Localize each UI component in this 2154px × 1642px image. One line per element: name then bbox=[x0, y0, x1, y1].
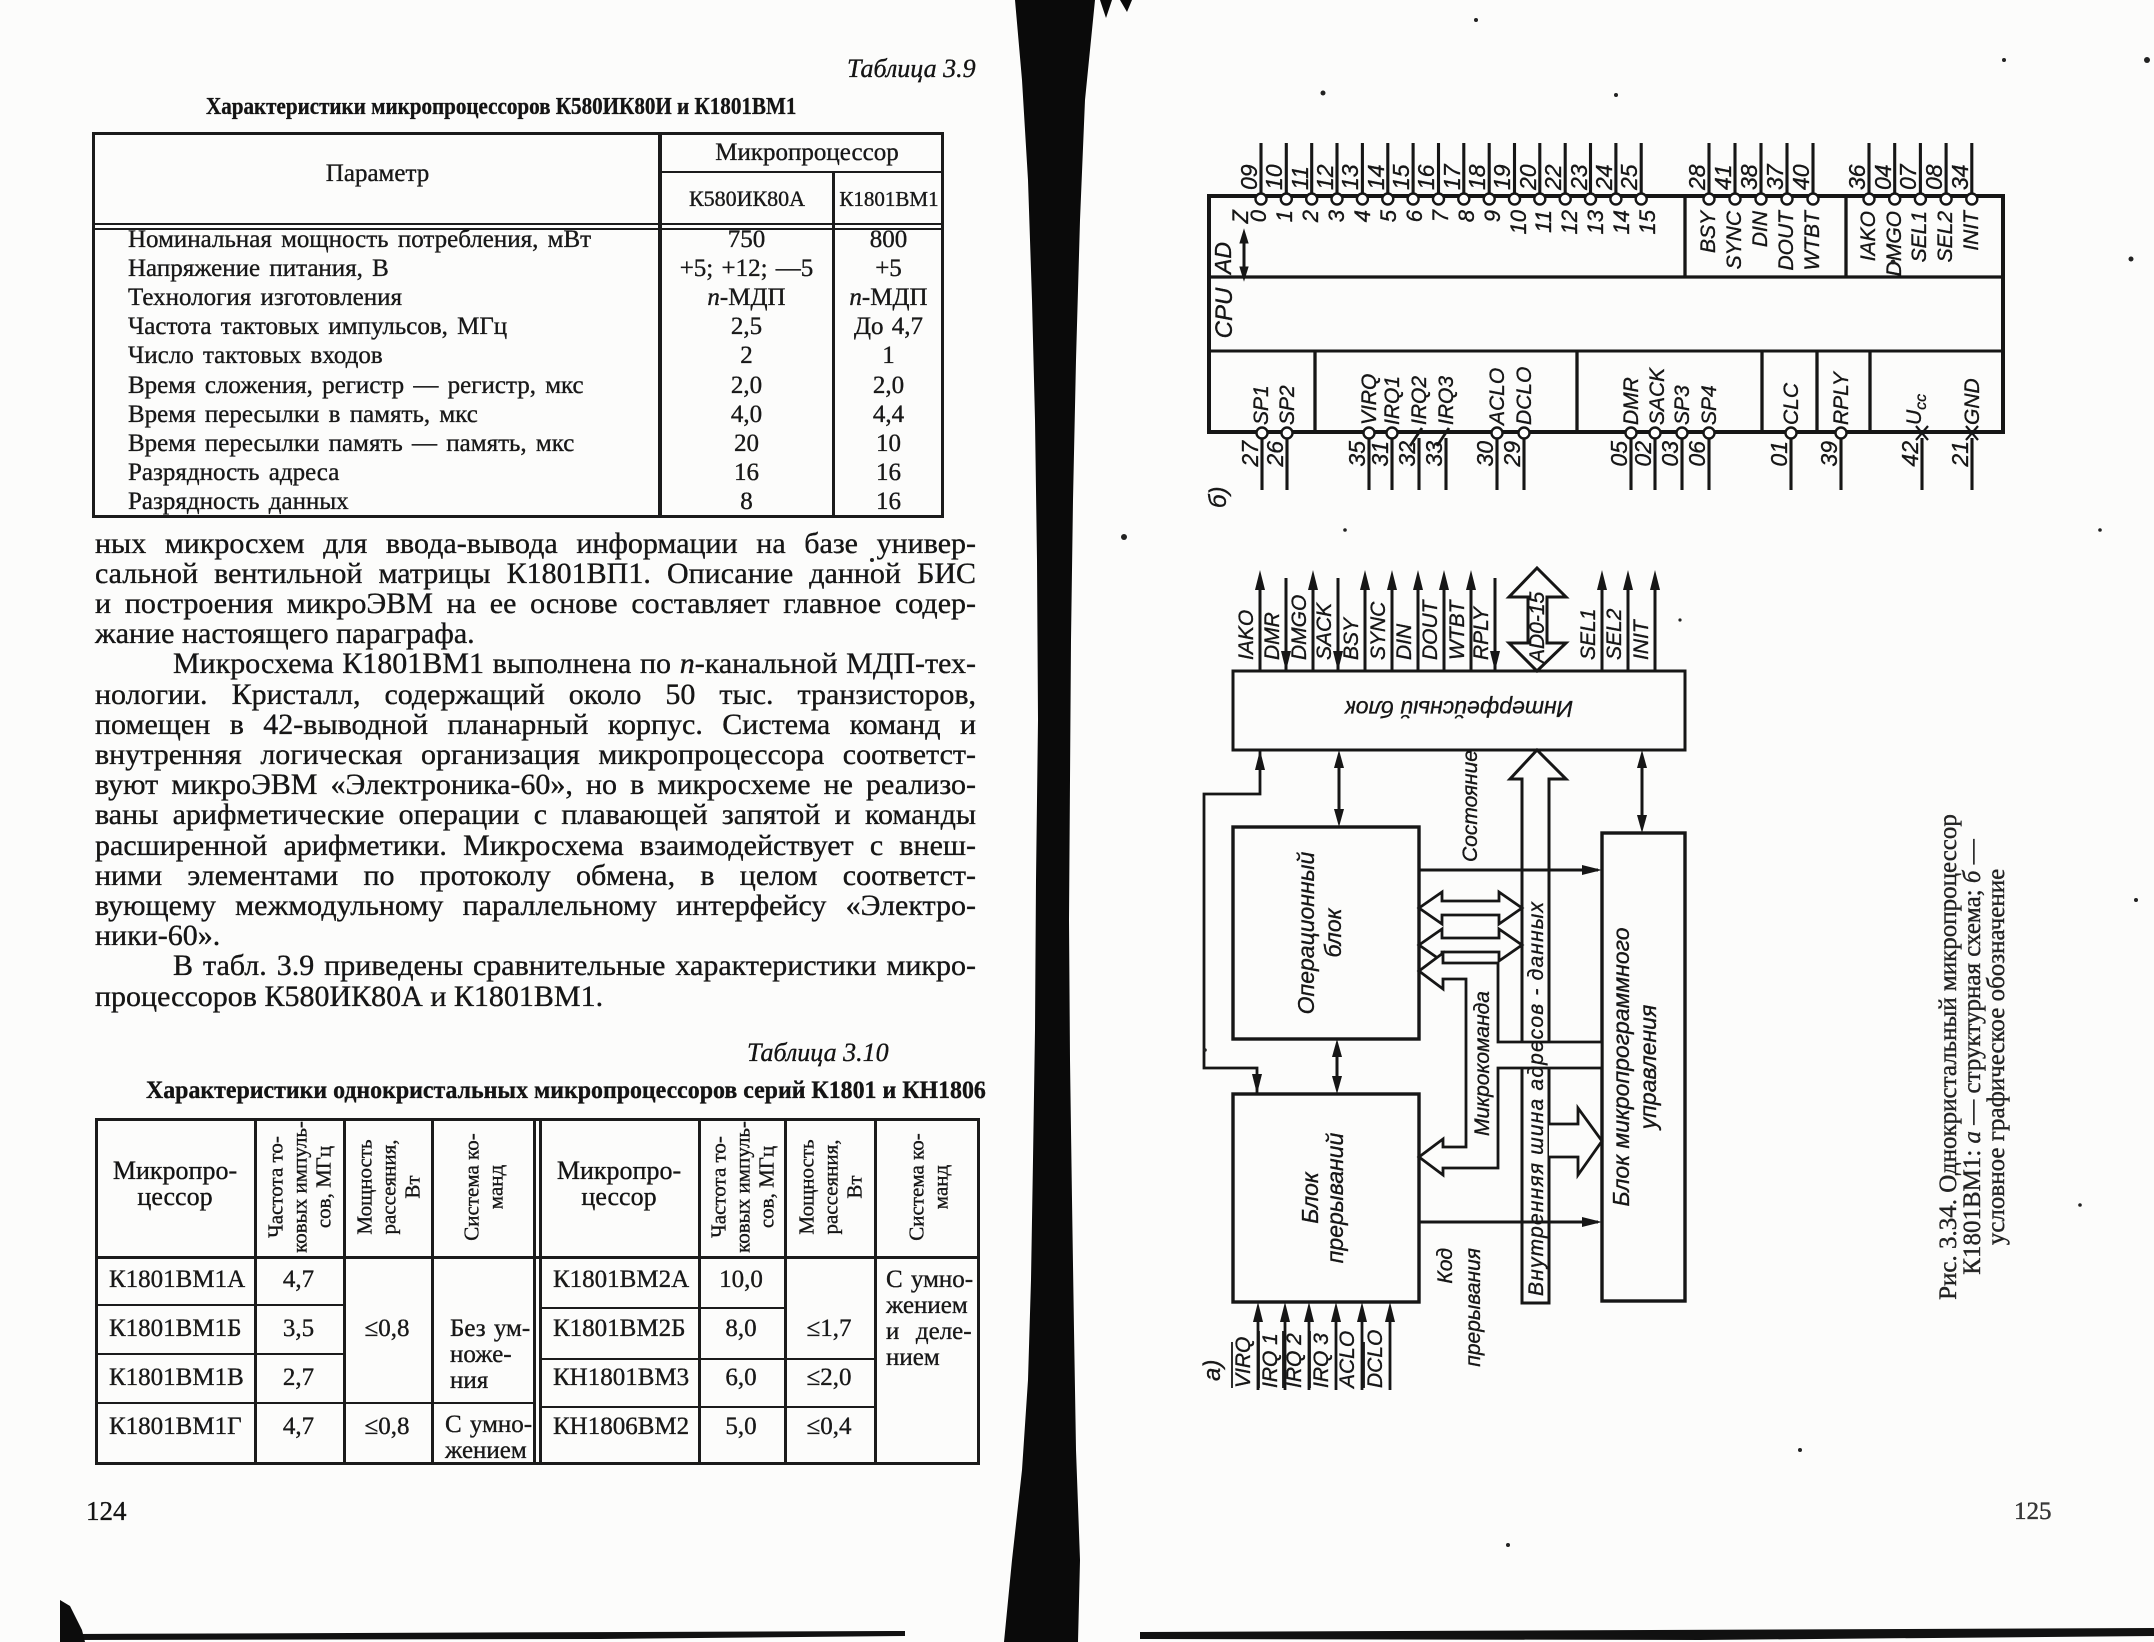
svg-text:GND: GND bbox=[1961, 378, 1984, 425]
svg-text:IRQ3: IRQ3 bbox=[1435, 376, 1458, 425]
svg-text:DIN: DIN bbox=[1749, 210, 1772, 247]
svg-text:DOUT: DOUT bbox=[1775, 209, 1798, 271]
svg-text:38: 38 bbox=[1736, 164, 1762, 190]
svg-text:RPLY: RPLY bbox=[1830, 370, 1853, 425]
svg-text:9: 9 bbox=[1480, 210, 1505, 222]
svg-text:1: 1 bbox=[1272, 210, 1297, 222]
svg-text:Вт: Вт bbox=[843, 1175, 867, 1198]
svg-text:блок: блок bbox=[1320, 907, 1346, 957]
svg-text:б): б) bbox=[1205, 487, 1232, 509]
svg-text:манд: манд bbox=[484, 1164, 508, 1209]
svg-text:09: 09 bbox=[1236, 164, 1262, 190]
svg-text:IRQ 2: IRQ 2 bbox=[1283, 1333, 1306, 1388]
svg-text:прерываний: прерываний bbox=[1322, 1133, 1348, 1264]
svg-text:BSY: BSY bbox=[1340, 616, 1363, 660]
svg-text:ковых импуль-: ковых импуль- bbox=[731, 1121, 755, 1253]
svg-text:сов, МГц: сов, МГц bbox=[755, 1146, 779, 1228]
svg-text:ковых импуль-: ковых импуль- bbox=[288, 1121, 312, 1253]
svg-text:SACK: SACK bbox=[1646, 367, 1669, 425]
svg-text:SEL2: SEL2 bbox=[1603, 608, 1626, 660]
svg-text:17: 17 bbox=[1439, 163, 1465, 190]
svg-text:DMR: DMR bbox=[1261, 612, 1284, 660]
svg-text:SP3: SP3 bbox=[1671, 385, 1694, 425]
svg-text:манд: манд bbox=[929, 1164, 953, 1209]
svg-text:10: 10 bbox=[1261, 164, 1287, 190]
svg-text:8: 8 bbox=[1454, 209, 1479, 222]
svg-text:30: 30 bbox=[1472, 441, 1498, 467]
svg-text:SEL2: SEL2 bbox=[1934, 211, 1957, 263]
svg-text:SYNC: SYNC bbox=[1723, 210, 1746, 269]
svg-text:Вт: Вт bbox=[401, 1175, 425, 1198]
svg-text:20: 20 bbox=[1515, 164, 1541, 191]
svg-text:Система ко-: Система ко- bbox=[905, 1133, 929, 1240]
svg-text:29: 29 bbox=[1499, 441, 1525, 468]
svg-text:Ucc: Ucc bbox=[1903, 394, 1930, 425]
svg-text:VIRQ: VIRQ bbox=[1232, 1337, 1255, 1388]
svg-text:Мощность: Мощность bbox=[795, 1139, 819, 1234]
svg-text:рассеяния,: рассеяния, bbox=[377, 1139, 401, 1234]
svg-text:07: 07 bbox=[1895, 163, 1921, 190]
svg-text:AD0-15: AD0-15 bbox=[1526, 591, 1549, 665]
svg-text:37: 37 bbox=[1762, 163, 1788, 190]
svg-text:управления: управления bbox=[1635, 1005, 1661, 1131]
svg-text:26: 26 bbox=[1262, 441, 1288, 468]
svg-text:IAKO: IAKO bbox=[1235, 610, 1258, 660]
svg-text:SP4: SP4 bbox=[1698, 385, 1721, 425]
svg-text:VIRQ: VIRQ bbox=[1358, 374, 1381, 425]
svg-text:12: 12 bbox=[1557, 210, 1582, 234]
svg-text:DMGO: DMGO bbox=[1883, 211, 1906, 276]
svg-text:34: 34 bbox=[1947, 164, 1973, 190]
svg-text:24: 24 bbox=[1591, 164, 1617, 191]
svg-text:SP1: SP1 bbox=[1250, 385, 1273, 425]
svg-text:SEL1: SEL1 bbox=[1577, 609, 1600, 660]
svg-text:05: 05 bbox=[1606, 441, 1632, 467]
svg-text:BSY: BSY bbox=[1697, 209, 1720, 253]
svg-text:0: 0 bbox=[1246, 209, 1271, 222]
svg-text:4: 4 bbox=[1350, 210, 1375, 222]
svg-text:Внутренняя шина адресов - да: Внутренняя шина адресов - данных bbox=[1525, 900, 1548, 1296]
svg-text:DCLO: DCLO bbox=[1364, 1330, 1387, 1388]
svg-text:15: 15 bbox=[1635, 209, 1660, 234]
svg-text:04: 04 bbox=[1870, 164, 1896, 190]
svg-text:5: 5 bbox=[1376, 209, 1401, 222]
svg-text:CLC: CLC bbox=[1780, 382, 1803, 425]
svg-text:рассеяния,: рассеяния, bbox=[819, 1139, 843, 1234]
svg-text:36: 36 bbox=[1844, 164, 1870, 190]
svg-text:условное графическое обозначен: условное графическое обозначение bbox=[1983, 869, 2010, 1245]
svg-text:SP2: SP2 bbox=[1276, 385, 1299, 425]
svg-text:Микрокоманда: Микрокоманда bbox=[1471, 991, 1494, 1136]
svg-text:10: 10 bbox=[1506, 209, 1531, 234]
svg-text:прерывания: прерывания bbox=[1462, 1248, 1485, 1367]
svg-text:03: 03 bbox=[1657, 441, 1683, 467]
svg-text:Мощность: Мощность bbox=[353, 1139, 377, 1234]
svg-text:Частота то-: Частота то- bbox=[707, 1136, 731, 1238]
svg-text:AD: AD bbox=[1210, 242, 1236, 276]
svg-text:40: 40 bbox=[1788, 164, 1814, 190]
svg-text:CPU: CPU bbox=[1211, 287, 1238, 338]
svg-text:15: 15 bbox=[1388, 164, 1414, 190]
svg-text:18: 18 bbox=[1464, 164, 1490, 190]
svg-text:WTBT: WTBT bbox=[1801, 209, 1824, 271]
svg-text:IRQ 3: IRQ 3 bbox=[1310, 1333, 1333, 1388]
svg-text:13: 13 bbox=[1583, 209, 1608, 234]
svg-text:Интерфейсный блок: Интерфейсный блок bbox=[1344, 696, 1573, 722]
svg-text:Операционный: Операционный bbox=[1293, 851, 1319, 1014]
svg-text:33: 33 bbox=[1421, 441, 1447, 467]
svg-text:7: 7 bbox=[1428, 209, 1453, 222]
svg-text:Блок микропрограммного: Блок микропрограммного bbox=[1608, 927, 1634, 1206]
svg-text:12: 12 bbox=[1312, 164, 1338, 190]
svg-text:11: 11 bbox=[1287, 166, 1313, 190]
svg-text:сов, МГц: сов, МГц bbox=[312, 1146, 336, 1228]
svg-text:06: 06 bbox=[1684, 441, 1710, 467]
svg-text:а): а) bbox=[1199, 1360, 1226, 1381]
svg-text:6: 6 bbox=[1402, 209, 1427, 222]
svg-text:DOUT: DOUT bbox=[1419, 598, 1442, 660]
svg-text:11: 11 bbox=[1531, 210, 1556, 233]
svg-text:41: 41 bbox=[1710, 164, 1736, 190]
svg-text:Код: Код bbox=[1434, 1248, 1457, 1284]
svg-text:02: 02 bbox=[1630, 441, 1656, 467]
svg-text:INIT: INIT bbox=[1960, 209, 1983, 251]
svg-text:2: 2 bbox=[1298, 210, 1323, 223]
svg-text:IAKO: IAKO bbox=[1857, 211, 1880, 261]
svg-text:Рис. 3.34. Однокристальный ми: Рис. 3.34. Однокристальный микропроцессо… bbox=[1935, 814, 1962, 1300]
svg-text:32: 32 bbox=[1394, 441, 1420, 467]
svg-text:SYNC: SYNC bbox=[1367, 601, 1390, 660]
svg-text:39: 39 bbox=[1816, 441, 1842, 467]
svg-text:23: 23 bbox=[1566, 164, 1592, 191]
svg-text:3: 3 bbox=[1324, 209, 1349, 222]
svg-text:14: 14 bbox=[1609, 210, 1634, 234]
svg-text:DCLO: DCLO bbox=[1513, 367, 1536, 425]
svg-text:SEL1: SEL1 bbox=[1908, 211, 1931, 262]
svg-text:25: 25 bbox=[1616, 164, 1642, 191]
svg-text:13: 13 bbox=[1337, 164, 1363, 190]
svg-text:IRQ1: IRQ1 bbox=[1381, 376, 1404, 425]
svg-text:WTBT: WTBT bbox=[1446, 598, 1469, 660]
svg-text:14: 14 bbox=[1363, 164, 1389, 190]
svg-text:01: 01 bbox=[1766, 441, 1792, 467]
svg-text:19: 19 bbox=[1489, 164, 1515, 190]
svg-text:SACK: SACK bbox=[1313, 602, 1336, 660]
svg-text:DMR: DMR bbox=[1620, 377, 1643, 425]
svg-text:RPLY: RPLY bbox=[1470, 605, 1493, 660]
svg-text:К1801ВМ1: а — структурная сх: К1801ВМ1: а — структурная схема; б — bbox=[1959, 838, 1986, 1274]
svg-text:Система ко-: Система ко- bbox=[460, 1133, 484, 1240]
svg-text:08: 08 bbox=[1921, 164, 1947, 190]
svg-text:28: 28 bbox=[1684, 164, 1710, 191]
svg-text:IRQ 1: IRQ 1 bbox=[1259, 1333, 1282, 1388]
svg-text:27: 27 bbox=[1237, 440, 1263, 468]
svg-text:22: 22 bbox=[1540, 164, 1566, 191]
svg-text:DMGO: DMGO bbox=[1288, 595, 1311, 660]
svg-text:DIN: DIN bbox=[1393, 623, 1416, 660]
svg-text:16: 16 bbox=[1413, 164, 1439, 190]
svg-text:ACLO: ACLO bbox=[1486, 368, 1509, 427]
svg-text:ACLO: ACLO bbox=[1336, 1331, 1359, 1390]
svg-text:21: 21 bbox=[1947, 441, 1973, 468]
svg-text:31: 31 bbox=[1367, 441, 1393, 467]
svg-text:Состояние: Состояние bbox=[1459, 750, 1482, 862]
svg-text:Частота то-: Частота то- bbox=[264, 1136, 288, 1238]
svg-text:Блок: Блок bbox=[1297, 1171, 1323, 1224]
svg-text:INIT: INIT bbox=[1630, 618, 1653, 660]
svg-text:42: 42 bbox=[1897, 441, 1923, 467]
svg-text:IRQ2: IRQ2 bbox=[1408, 376, 1431, 425]
